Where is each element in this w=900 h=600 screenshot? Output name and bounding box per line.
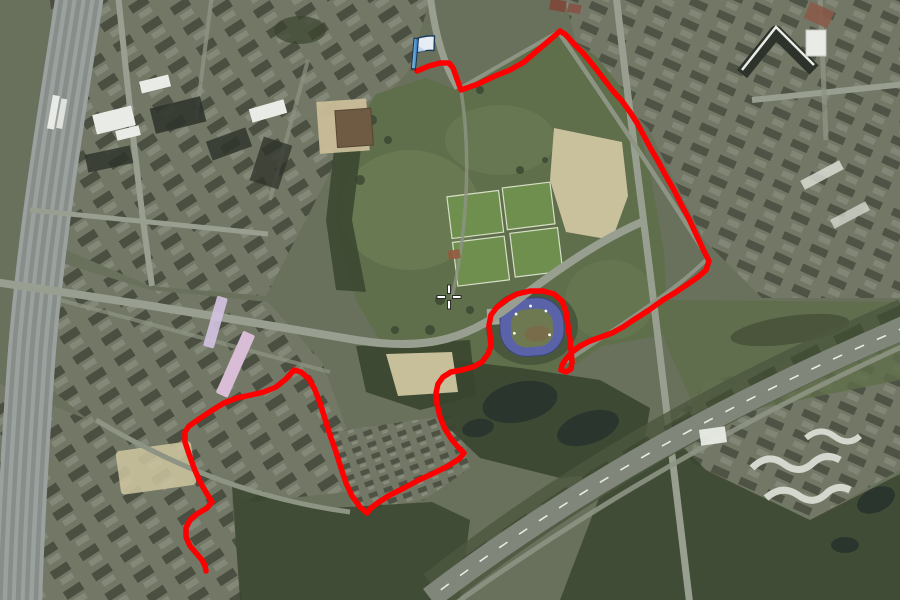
satellite-map — [0, 0, 900, 600]
map-canvas[interactable] — [0, 0, 900, 600]
